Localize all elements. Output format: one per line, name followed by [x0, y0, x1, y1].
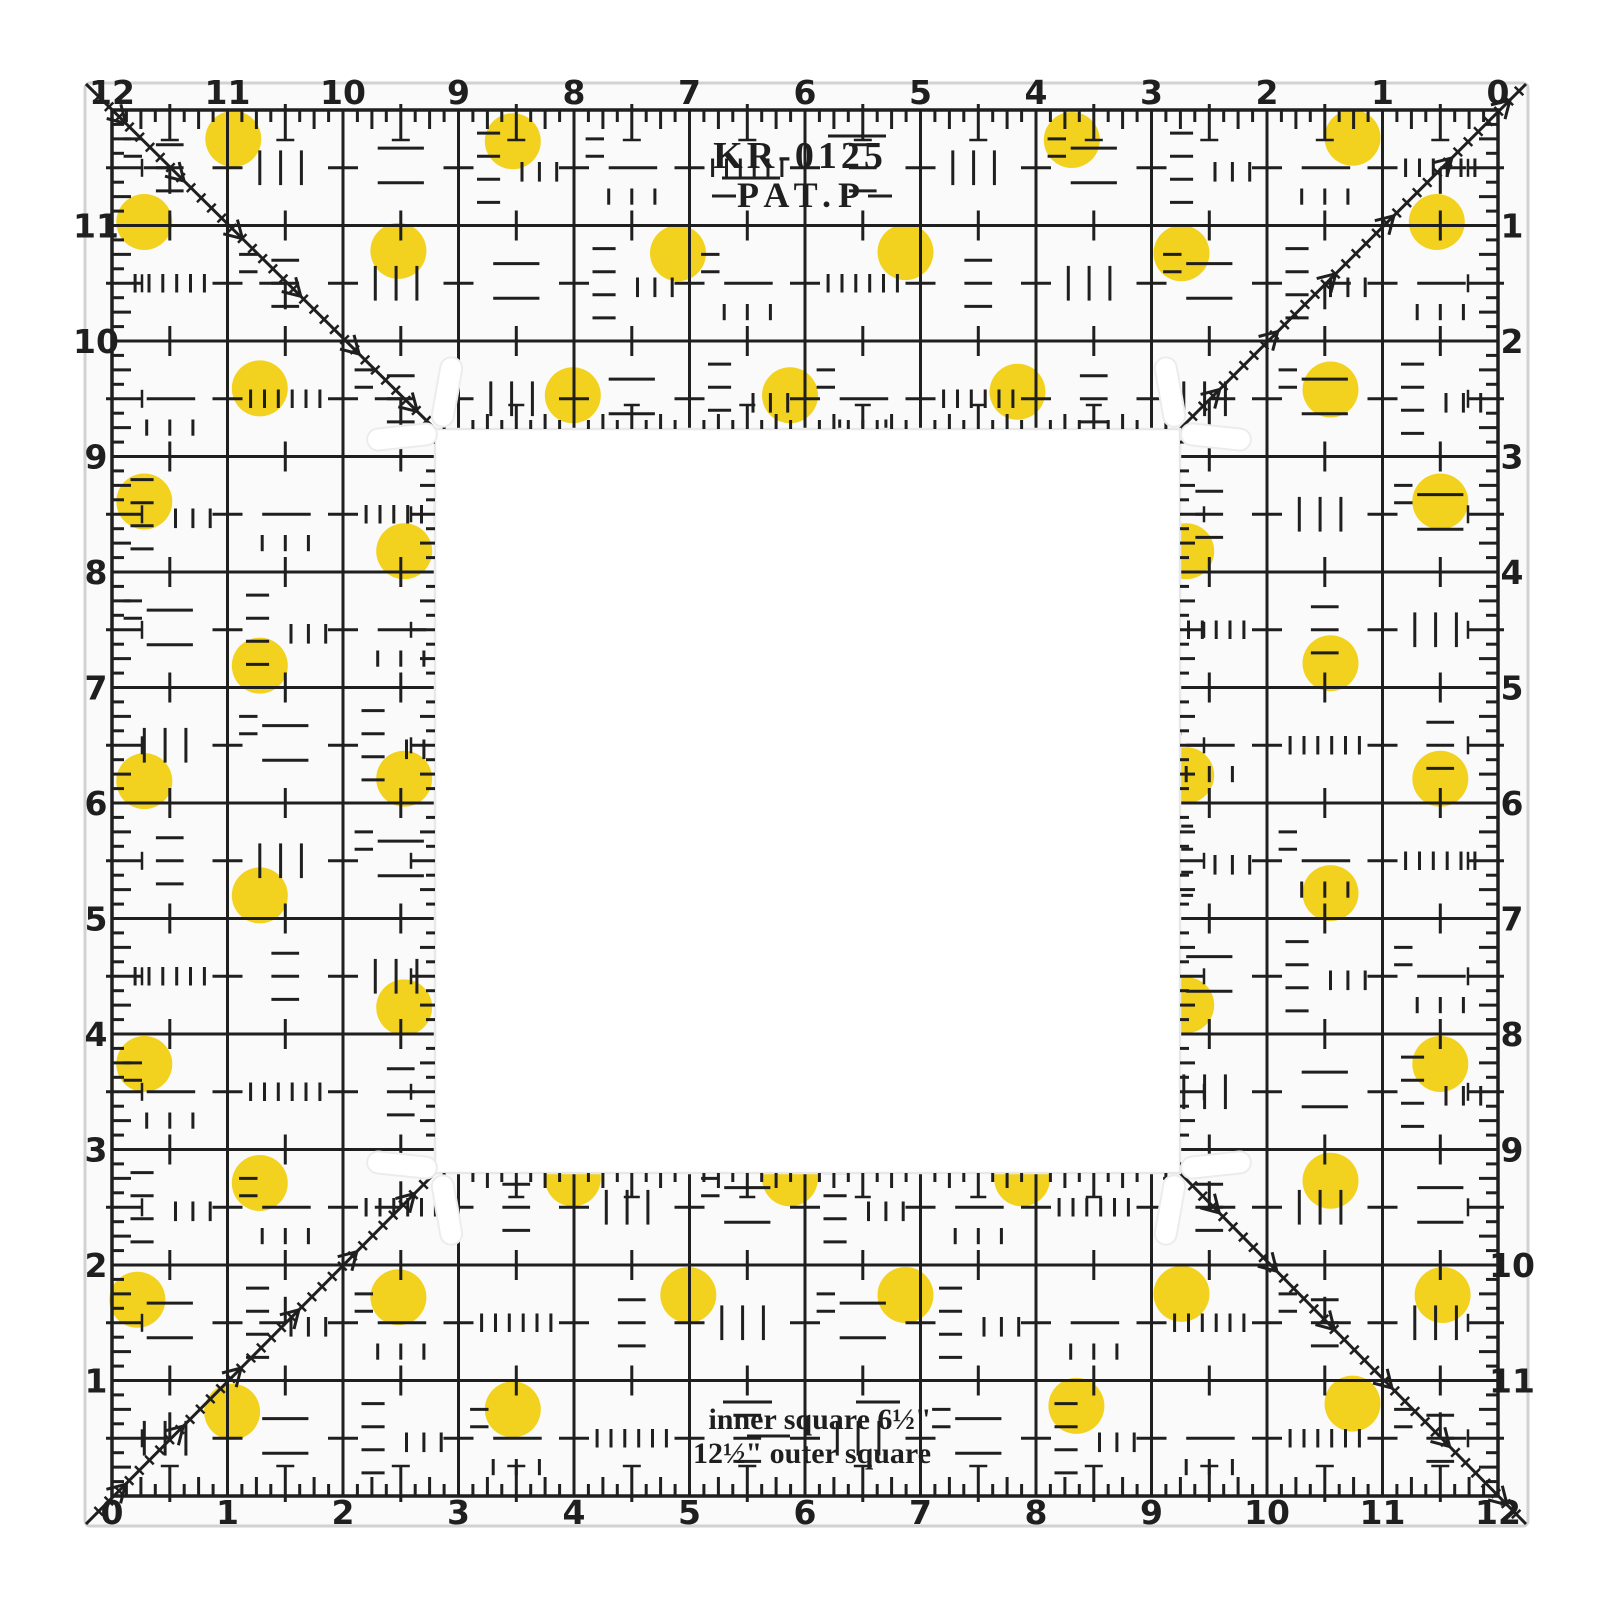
model-text: KR-0125 — [713, 135, 887, 177]
scale-number: 3 — [85, 1131, 108, 1170]
scale-number: 1 — [1501, 207, 1524, 246]
scale-number: 11 — [1489, 1362, 1535, 1401]
scale-number: 8 — [1501, 1015, 1524, 1054]
scale-number: 2 — [332, 1493, 355, 1532]
yellow-dot — [1303, 362, 1359, 418]
scale-number: 11 — [1360, 1493, 1406, 1532]
scale-number: 12 — [1475, 1493, 1521, 1532]
scale-number: 2 — [1501, 322, 1524, 361]
yellow-dot — [1415, 1267, 1471, 1323]
scale-number: 4 — [1025, 73, 1048, 112]
scale-number: 3 — [1501, 438, 1524, 477]
scale-number: 0 — [1487, 73, 1510, 112]
yellow-dot — [376, 979, 432, 1035]
scale-number: 6 — [794, 1493, 817, 1532]
scale-number: 8 — [85, 553, 108, 592]
yellow-dot — [1412, 474, 1468, 530]
scale-number: 9 — [447, 73, 470, 112]
inner-size-label: inner square 6½" — [708, 1403, 931, 1436]
scale-number: 10 — [1489, 1246, 1535, 1285]
scale-number: 8 — [563, 73, 586, 112]
scale-number: 1 — [1371, 73, 1394, 112]
scale-number: 0 — [101, 1493, 124, 1532]
scale-number: 4 — [85, 1015, 108, 1054]
yellow-dot — [1325, 1376, 1381, 1432]
scale-number: 2 — [85, 1246, 108, 1285]
scale-number: 10 — [73, 322, 119, 361]
scale-number: 1 — [216, 1493, 239, 1532]
scale-number: 3 — [447, 1493, 470, 1532]
scale-number: 1 — [85, 1362, 108, 1401]
yellow-dot — [650, 225, 706, 281]
scale-number: 5 — [909, 73, 932, 112]
yellow-dot — [878, 224, 934, 280]
scale-number: 9 — [85, 438, 108, 477]
scale-number: 5 — [85, 900, 108, 939]
scale-number: 7 — [678, 73, 701, 112]
scale-number: 6 — [85, 784, 108, 823]
scale-number: 3 — [1140, 73, 1163, 112]
yellow-dot — [1303, 635, 1359, 691]
scale-number: 12 — [89, 73, 135, 112]
scale-number: 7 — [909, 1493, 932, 1532]
scale-number: 10 — [320, 73, 366, 112]
scale-number: 6 — [1501, 784, 1524, 823]
yellow-dot — [1303, 865, 1359, 921]
product-photo: 1211109876543210012345678910111211109876… — [0, 0, 1600, 1600]
scale-number: 4 — [1501, 553, 1524, 592]
yellow-dot — [1303, 1153, 1359, 1209]
yellow-dot — [878, 1267, 934, 1323]
scale-number: 10 — [1244, 1493, 1290, 1532]
scale-number: 9 — [1140, 1493, 1163, 1532]
inner-square-cutout — [435, 429, 1180, 1173]
yellow-dot — [370, 1269, 426, 1325]
yellow-dot — [485, 1381, 541, 1437]
scale-number: 8 — [1025, 1493, 1048, 1532]
yellow-dot — [204, 1384, 260, 1440]
scale-number: 11 — [205, 73, 251, 112]
scale-number: 7 — [85, 669, 108, 708]
scale-number: 5 — [1501, 669, 1524, 708]
quilting-ruler: 1211109876543210012345678910111211109876… — [0, 0, 1600, 1600]
scale-number: 9 — [1501, 1131, 1524, 1170]
scale-number: 2 — [1256, 73, 1279, 112]
scale-number: 6 — [794, 73, 817, 112]
yellow-dot — [116, 194, 172, 250]
scale-number: 4 — [563, 1493, 586, 1532]
scale-number: 5 — [678, 1493, 701, 1532]
scale-number: 7 — [1501, 900, 1524, 939]
patent-text: PAT.P — [737, 175, 867, 215]
ruler-markings: 1211109876543210012345678910111211109876… — [73, 73, 1535, 1532]
outer-size-label: 12½" outer square — [693, 1437, 931, 1470]
yellow-dot — [1409, 194, 1465, 250]
scale-number: 11 — [73, 207, 119, 246]
yellow-dot — [232, 1155, 288, 1211]
